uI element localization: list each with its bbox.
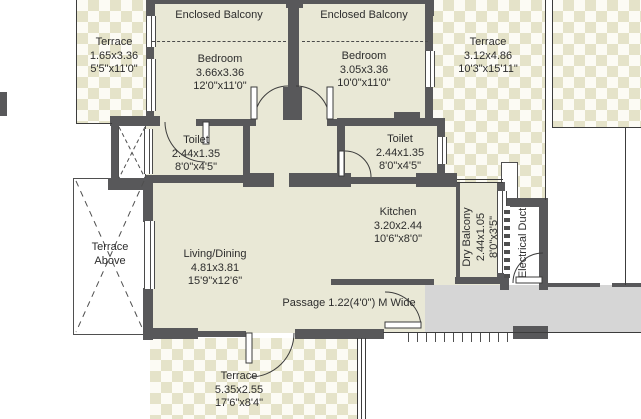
wall-segment — [337, 118, 440, 126]
wall-segment — [197, 331, 246, 337]
label-dry-balcony: Dry Balcony2.44x1.058'0"x3'5" — [461, 182, 503, 292]
terrace-outline — [552, 127, 641, 128]
wall-segment — [416, 173, 457, 187]
balcony-separator — [302, 41, 428, 42]
railing-line — [365, 338, 366, 419]
railing-line — [361, 338, 362, 419]
terrace-outline — [545, 0, 546, 200]
wall-segment — [425, 86, 433, 122]
wall-segment — [456, 182, 460, 279]
wall-segment — [394, 112, 420, 126]
label-electrical-duct: Electrical Duct — [517, 193, 531, 293]
boundary-line — [625, 128, 626, 285]
label-terrace-right: Terrace3.12x4.8610'3"x15'11" — [432, 36, 544, 77]
label-bedroom-left: Bedroom3.66x3.3612'0"x11'0" — [154, 53, 286, 94]
railing-line — [357, 338, 358, 419]
label-living-dining: Living/Dining4.81x3.8115'9"x12'6" — [153, 248, 277, 289]
label-toilet-left: Toilet2.44x1.358'0"x4'5" — [146, 134, 246, 175]
terrace-outline — [552, 0, 553, 128]
wall-segment — [111, 122, 118, 180]
wall-segment — [548, 283, 600, 287]
wall-segment — [337, 124, 345, 176]
wall-segment — [143, 178, 153, 222]
label-toilet-right: Toilet2.44x1.358'0"x4'5" — [350, 133, 450, 174]
label-terrace-left: Terrace1.65x3.365'5"x11'0" — [78, 36, 150, 77]
label-enclosed-balcony-left: Enclosed Balcony — [152, 9, 286, 23]
duct-hatched-wall — [504, 206, 510, 278]
floor-plan: Enclosed Balcony Enclosed Balcony Terrac… — [0, 0, 641, 419]
wall-segment — [288, 2, 299, 88]
wall-segment — [612, 283, 641, 287]
wall-segment — [539, 205, 548, 290]
label-terrace-above: TerraceAbove — [75, 241, 145, 268]
wall-segment — [108, 178, 148, 190]
wall-segment — [330, 177, 418, 184]
terrace-outline — [76, 0, 77, 124]
wall-segment — [331, 279, 434, 285]
balcony-separator — [152, 41, 286, 42]
window-line — [457, 179, 503, 180]
common-corridor — [425, 285, 641, 332]
label-passage: Passage 1.22(4'0") M Wide — [263, 297, 435, 311]
label-kitchen: Kitchen3.20x2.4410'6"x8'0" — [343, 206, 453, 247]
wall-segment — [146, 175, 246, 183]
wall-segment — [295, 329, 384, 339]
label-enclosed-balcony-right: Enclosed Balcony — [300, 9, 428, 23]
label-terrace-bottom: Terrace5.35x2.5517'6"x8'4" — [163, 370, 315, 411]
shaft-box — [118, 125, 146, 180]
stair-ticks — [408, 333, 514, 342]
wall-segment — [243, 173, 274, 187]
terrace-outline — [76, 123, 112, 124]
adjacent-terrace-area — [552, 0, 641, 128]
label-bedroom-right: Bedroom3.05x3.3610'0"x11'0" — [300, 50, 428, 91]
wall-segment — [0, 92, 7, 116]
wall-segment — [143, 328, 198, 339]
